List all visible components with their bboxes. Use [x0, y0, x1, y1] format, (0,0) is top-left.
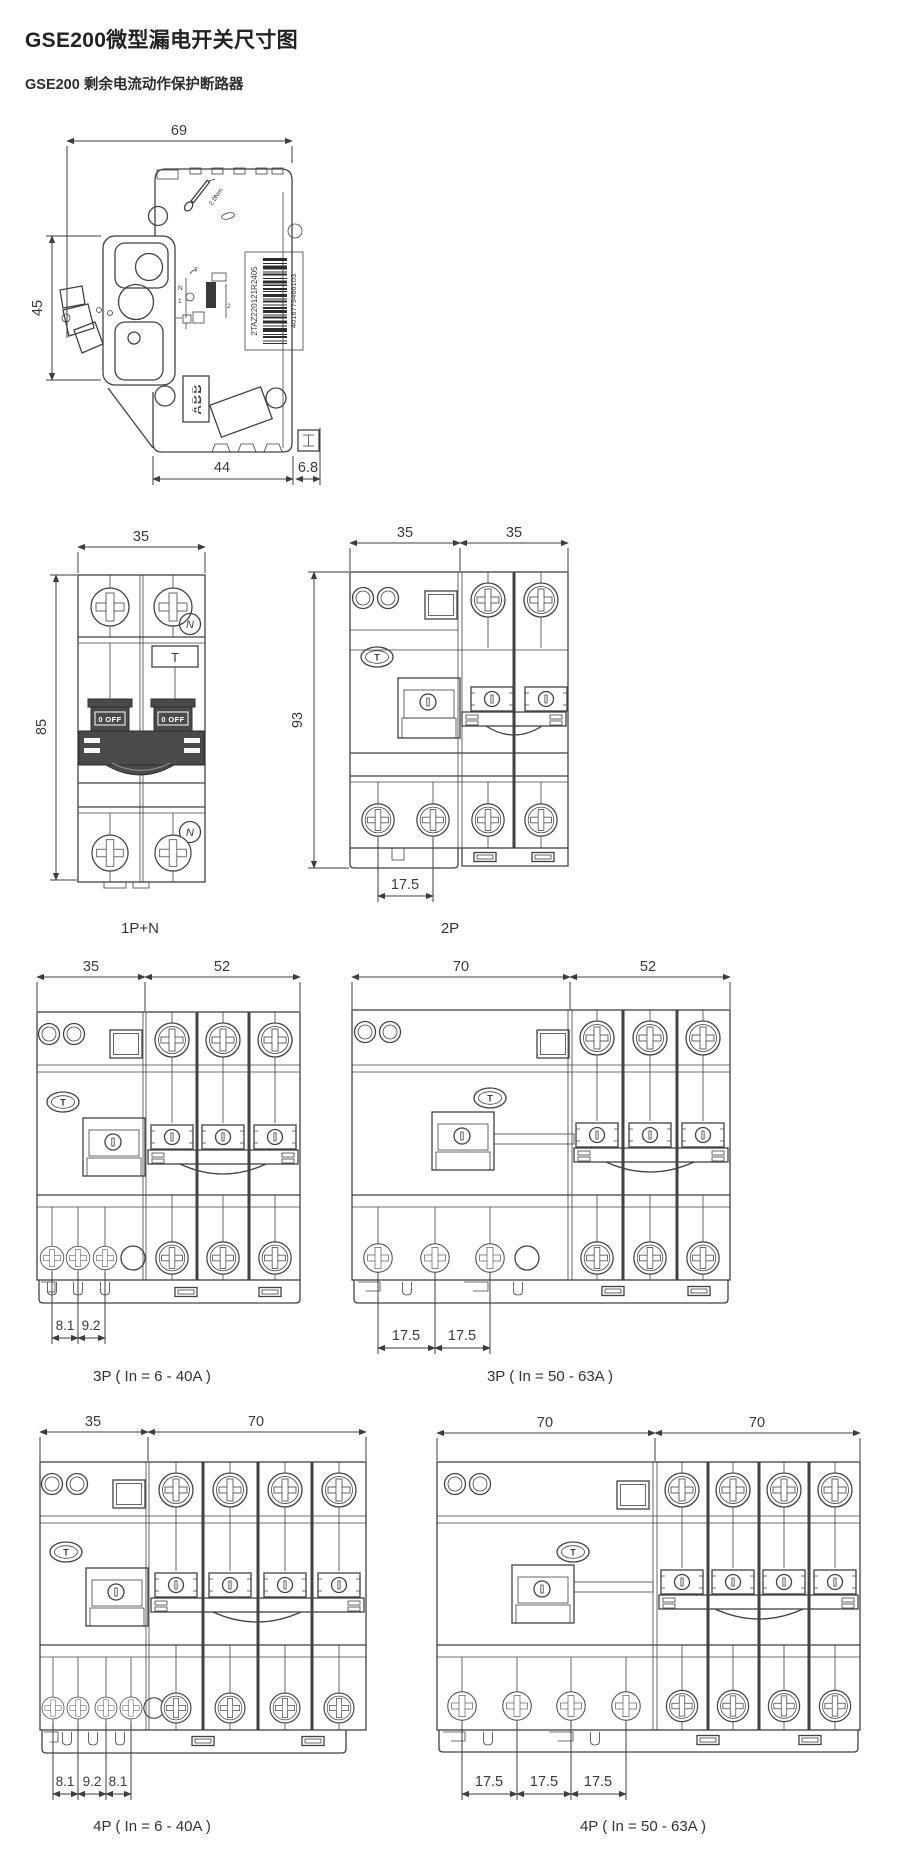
- dimension-lines: 35 35 93 17.5: [290, 525, 568, 902]
- dim-top-label: 35: [85, 1414, 101, 1430]
- dim-top-label: 35: [83, 959, 99, 975]
- mounting-rail: [354, 1280, 728, 1303]
- schematic-2-label: 2: [227, 303, 231, 310]
- dim-bottom-label: 8.1: [56, 1318, 75, 1333]
- dim-top-label: 35: [397, 525, 413, 541]
- dim-top-label: 70: [537, 1415, 553, 1431]
- rcd-handle: [83, 1118, 145, 1176]
- dim-rail-label: 6.8: [298, 460, 318, 476]
- pole-handle-bar: [574, 1148, 728, 1172]
- breaker-body: [40, 1462, 366, 1730]
- rcd-handle: [398, 678, 460, 738]
- dim-bottom-label: 17.5: [448, 1328, 476, 1344]
- view-label: 1P+N: [121, 920, 159, 937]
- mounting-rail: [42, 1730, 346, 1753]
- dim-top-label: 70: [749, 1415, 765, 1431]
- dim-base-label: 44: [214, 460, 230, 476]
- dim-top-label: 70: [248, 1414, 264, 1430]
- dim-height-label: 85: [34, 719, 50, 735]
- dim-bottom-label: 17.5: [391, 877, 419, 893]
- dim-bottom-label: 8.1: [109, 1774, 128, 1789]
- schematic-t-label: T: [194, 267, 198, 274]
- breaker-body: [350, 572, 568, 848]
- toggle-label: 0 OFF: [98, 715, 121, 724]
- breaker-body: T 0 OFF 0 OFF: [78, 575, 205, 888]
- view-label: 3P ( In = 6 - 40A ): [93, 1368, 211, 1385]
- barcode-code: 2TAZ220121R2405: [250, 266, 259, 336]
- test-button-label: T: [171, 650, 179, 665]
- dim-height-label: 45: [30, 300, 46, 316]
- handle-bar: [79, 731, 204, 775]
- dimension-lines: 35 52 8.1 9.2: [37, 959, 300, 1344]
- rating-plate: [210, 387, 272, 437]
- schematic-1-label: 1: [178, 298, 182, 305]
- dim-bottom-label: 8.1: [56, 1774, 75, 1789]
- dim-top-label: 52: [640, 959, 656, 975]
- front-view-3p-large: 70 52 17.5 17.5: [352, 959, 730, 1385]
- abb-logo: ABB: [183, 376, 209, 422]
- breaker-body: [37, 1012, 300, 1280]
- pole-handle-bar: [148, 1150, 298, 1174]
- view-label: 2P: [441, 920, 459, 937]
- front-view-2p: 35 35 93 17.5: [290, 525, 568, 937]
- mounting-rail: [439, 1730, 858, 1752]
- torque-screwdriver-icon: 2.0Nm: [183, 174, 235, 220]
- dim-height-label: 93: [290, 712, 306, 728]
- breaker-body: [352, 1010, 730, 1280]
- breaker-body: [437, 1462, 860, 1730]
- front-view-4p-small: 35 70 8.1 9.2 8.1: [40, 1414, 366, 1835]
- dim-top-label: 35: [133, 529, 149, 545]
- view-label: 4P ( In = 6 - 40A ): [93, 1818, 211, 1835]
- toggle-right: 0 OFF: [151, 699, 195, 731]
- din-clip: [60, 286, 103, 353]
- view-label: 3P ( In = 50 - 63A ): [487, 1368, 613, 1385]
- dim-bottom-label: 9.2: [83, 1774, 102, 1789]
- barcode-number: 4016779466103: [289, 274, 298, 328]
- dim-top-label: 70: [453, 959, 469, 975]
- rcd-handle: [432, 1112, 494, 1170]
- dim-bottom-label: 17.5: [530, 1774, 558, 1790]
- toggle-left: 0 OFF: [88, 699, 132, 731]
- body-outline: [108, 168, 319, 452]
- side-view-drawing: 69 45 44 6.8: [30, 123, 320, 485]
- front-view-4p-large: 70 70 17.5 17.5 17.5: [437, 1415, 860, 1835]
- rcd-handle: [86, 1568, 148, 1626]
- wiring-schematic: T N 1 2: [176, 267, 231, 329]
- dim-bottom-label: 17.5: [584, 1774, 612, 1790]
- front-face: [97, 236, 176, 385]
- torque-label: 2.0Nm: [208, 187, 225, 207]
- dim-bottom-label: 9.2: [82, 1318, 101, 1333]
- dim-width-label: 69: [171, 123, 187, 139]
- rcd-handle: [512, 1565, 574, 1623]
- barcode-label: 2TAZ220121R2405 4016779466103: [245, 252, 303, 350]
- schematic-n-label: N: [178, 285, 183, 292]
- dimension-diagram: T N 69 45 44 6.8: [0, 0, 900, 1875]
- dimension-lines: 70 70 17.5 17.5 17.5: [437, 1415, 860, 1800]
- front-view-1pn: 35 85 T 0 OFF 0 OFF: [34, 529, 205, 937]
- view-label: 4P ( In = 50 - 63A ): [580, 1818, 706, 1835]
- dim-bottom-label: 17.5: [392, 1328, 420, 1344]
- mounting-rail: [350, 848, 568, 868]
- dim-top-label: 35: [506, 525, 522, 541]
- dim-bottom-label: 17.5: [475, 1774, 503, 1790]
- toggle-label: 0 OFF: [161, 715, 184, 724]
- dim-top-label: 52: [214, 959, 230, 975]
- front-view-3p-small: 35 52 8.1 9.2: [37, 959, 300, 1385]
